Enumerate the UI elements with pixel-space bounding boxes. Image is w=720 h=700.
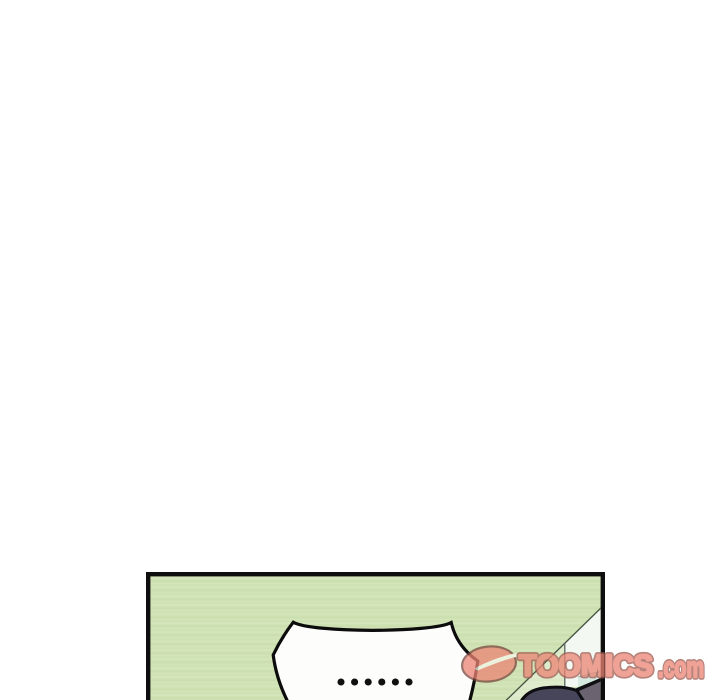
svg-text:TOOMICS: TOOMICS — [519, 650, 653, 683]
svg-text:.com: .com — [658, 652, 704, 684]
